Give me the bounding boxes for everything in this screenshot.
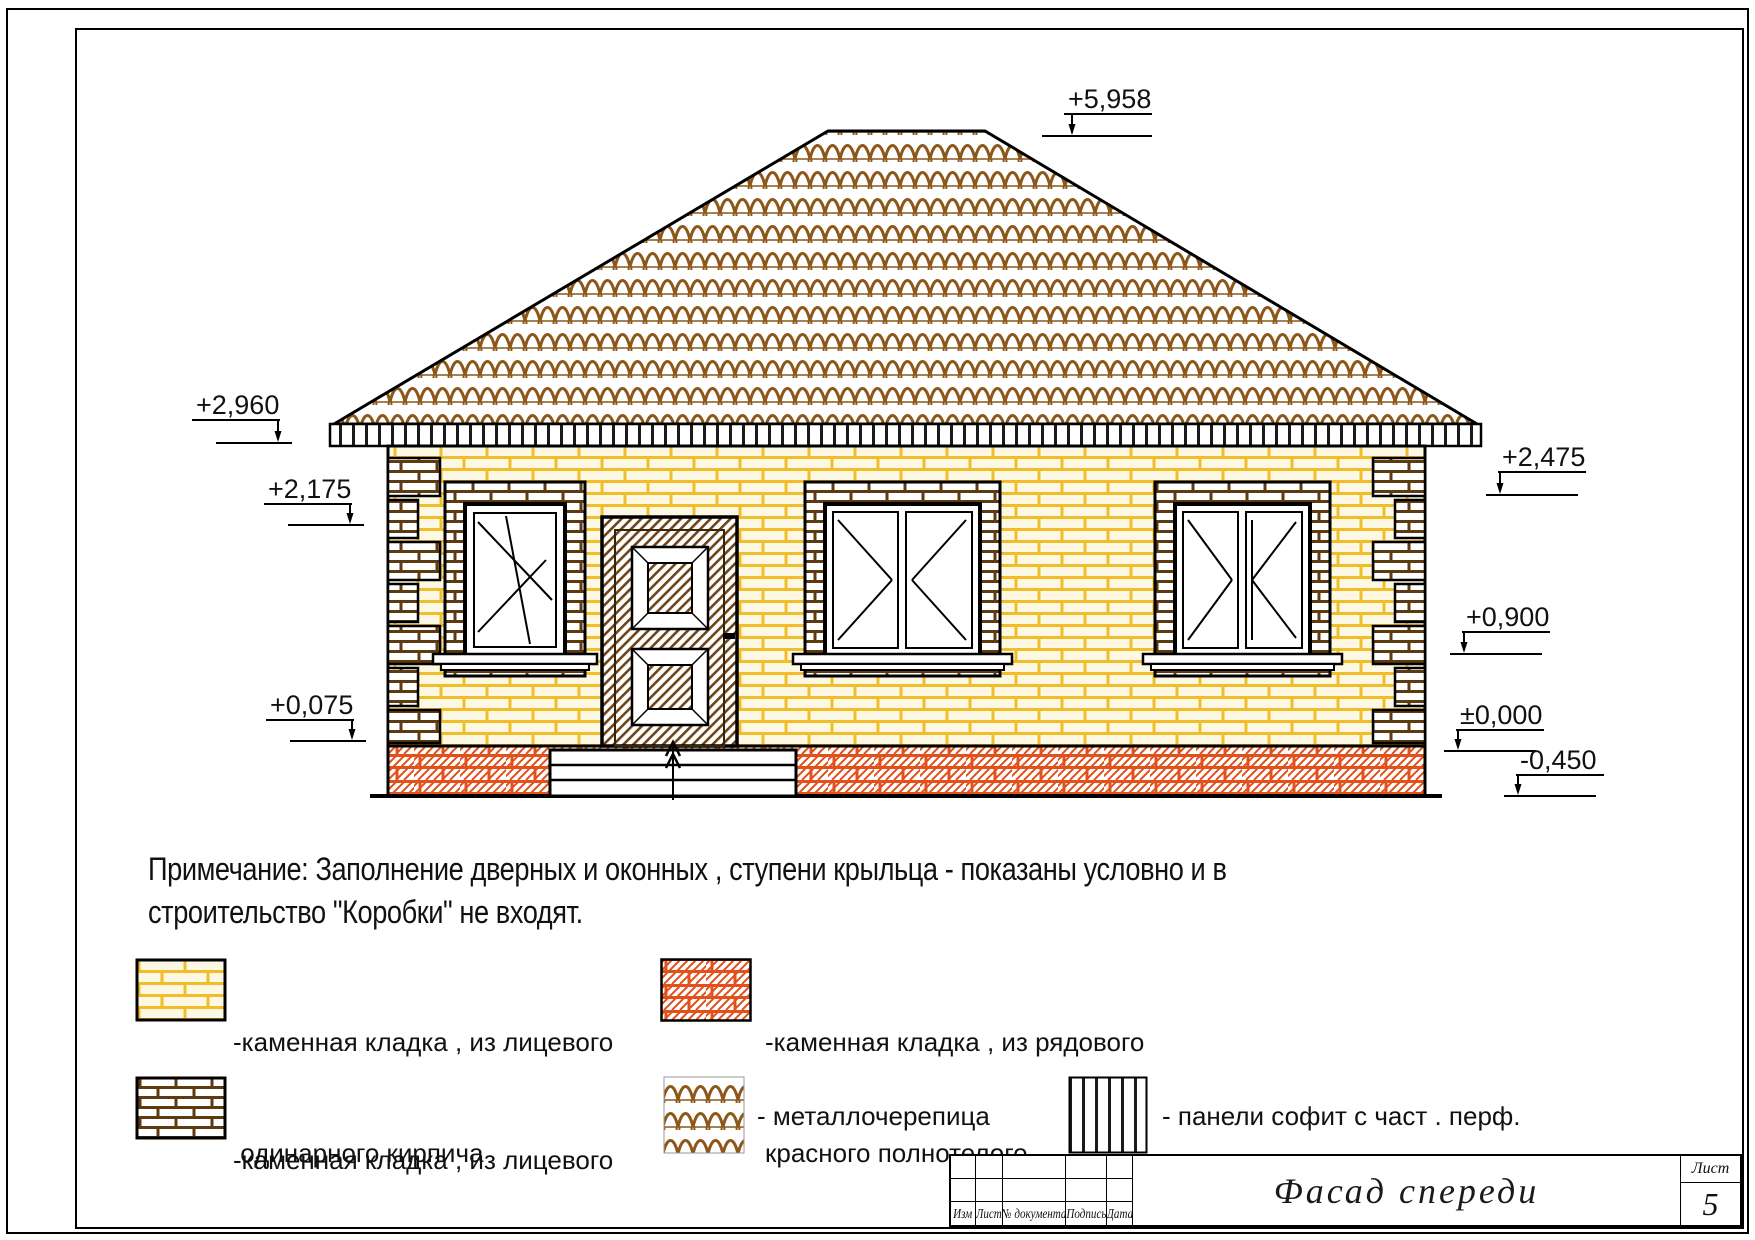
legend-label-brown-brick: -каменная кладка , из лицевого одинарног… xyxy=(233,1068,613,1240)
elevation-value: +5,958 xyxy=(1068,84,1151,114)
entry-door xyxy=(602,517,737,746)
elevation-mark-right-2: +0,900 xyxy=(1450,602,1550,654)
elevation-value: +0,900 xyxy=(1466,602,1549,632)
window-middle xyxy=(793,482,1012,676)
drawing-title-cell: Фасад спереди xyxy=(1133,1156,1680,1225)
col-date: Дата xyxy=(1107,1206,1133,1222)
elevation-value: +2,475 xyxy=(1502,442,1585,472)
soffit-band xyxy=(330,424,1481,446)
legend-label-soffit: - панели софит с част . перф. xyxy=(1162,1098,1521,1135)
window-left xyxy=(433,482,597,676)
legend-swatch-brown-brick xyxy=(135,1076,227,1140)
legend-swatch-red-brick xyxy=(660,958,752,1022)
col-signature: Подпись xyxy=(1066,1206,1106,1222)
elevation-mark-right-3: ±0,000 xyxy=(1444,700,1544,751)
elevation-mark-left-2: +2,175 xyxy=(264,474,364,525)
legend-swatch-metal-tile xyxy=(663,1076,745,1154)
elevation-value: +2,960 xyxy=(196,390,279,420)
elevation-value: ±0,000 xyxy=(1460,700,1542,730)
elevation-mark-right-1: +2,475 xyxy=(1486,442,1586,495)
elevation-mark-right-4: -0,450 xyxy=(1504,745,1604,796)
roof xyxy=(334,131,1477,424)
sheet-label: Лист xyxy=(1681,1156,1740,1183)
elevation-mark-left-1: +2,960 xyxy=(192,390,292,443)
col-doc-number: № документа xyxy=(1003,1206,1066,1222)
elevation-value: -0,450 xyxy=(1520,745,1597,775)
elevation-mark-ridge: +5,958 xyxy=(1042,84,1152,136)
elevation-value: +0,075 xyxy=(270,690,353,720)
legend-label-metal-tile: - металлочерепица xyxy=(757,1098,990,1135)
legend-swatch-yellow-brick xyxy=(135,958,227,1022)
facade-drawing: +5,958 +2,960 +2,175 +0,075 +2,475 +0,90… xyxy=(0,0,1755,840)
drawing-sheet: +5,958 +2,960 +2,175 +0,075 +2,475 +0,90… xyxy=(0,0,1755,1240)
note-line-1: Примечание: Заполнение дверных и оконных… xyxy=(148,848,1338,891)
elevation-mark-left-3: +0,075 xyxy=(266,690,366,741)
note-line-2: строительство "Коробки" не входят. xyxy=(148,891,1338,934)
elevation-value: +2,175 xyxy=(268,474,351,504)
plinth xyxy=(388,746,1425,796)
drawing-note: Примечание: Заполнение дверных и оконных… xyxy=(148,848,1338,934)
window-right xyxy=(1143,482,1342,676)
col-izm: Изм xyxy=(953,1206,972,1222)
drawing-title: Фасад спереди xyxy=(1274,1170,1539,1212)
sheet-number-cell: Лист 5 xyxy=(1680,1156,1740,1225)
sheet-number: 5 xyxy=(1681,1183,1740,1225)
porch-steps xyxy=(550,742,796,800)
title-block-revision-table: Изм Лист № документа Подпись Дата xyxy=(951,1156,1133,1225)
col-list: Лист xyxy=(976,1206,1002,1222)
door-handle xyxy=(723,633,735,639)
title-block: Изм Лист № документа Подпись Дата Фасад … xyxy=(949,1154,1742,1227)
